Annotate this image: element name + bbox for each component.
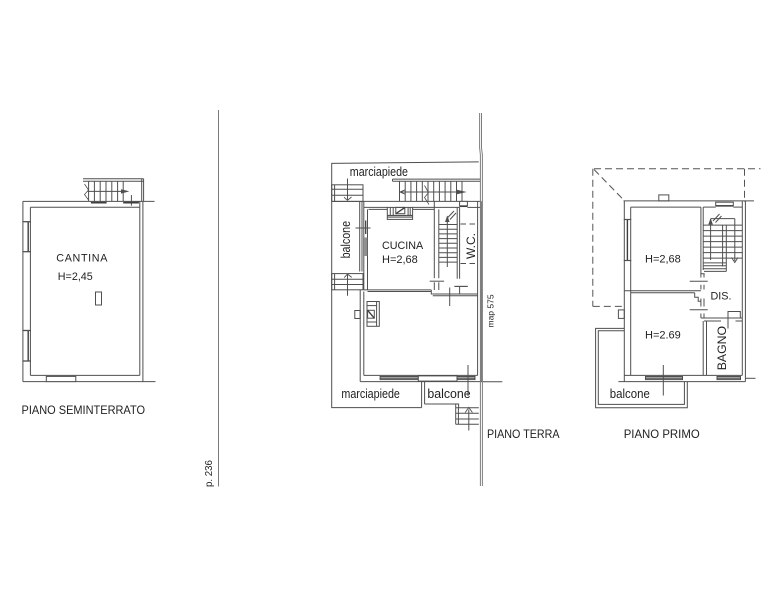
svg-text:W.C.: W.C. (464, 233, 478, 259)
svg-text:CANTINA: CANTINA (56, 253, 108, 265)
svg-text:CUCINA: CUCINA (382, 240, 424, 252)
svg-text:map 575: map 575 (486, 294, 496, 327)
svg-text:PIANO TERRA: PIANO TERRA (487, 427, 560, 441)
svg-text:H=2.69: H=2.69 (645, 330, 681, 342)
svg-text:H=2,68: H=2,68 (382, 254, 418, 266)
svg-text:marciapiede: marciapiede (341, 387, 400, 401)
svg-text:PIANO SEMINTERRATO: PIANO SEMINTERRATO (22, 403, 146, 417)
svg-text:H=2,68: H=2,68 (645, 254, 681, 266)
svg-text:H=2,45: H=2,45 (58, 271, 93, 283)
svg-text:p. 236: p. 236 (204, 460, 215, 487)
svg-text:balcone: balcone (427, 387, 470, 401)
svg-text:balcone: balcone (610, 387, 650, 401)
svg-text:PIANO PRIMO: PIANO PRIMO (624, 427, 700, 441)
svg-text:balcone: balcone (339, 221, 353, 259)
svg-text:BAGNO: BAGNO (715, 326, 729, 370)
svg-text:DIS.: DIS. (711, 290, 732, 302)
svg-text:marciapiede: marciapiede (350, 165, 408, 179)
